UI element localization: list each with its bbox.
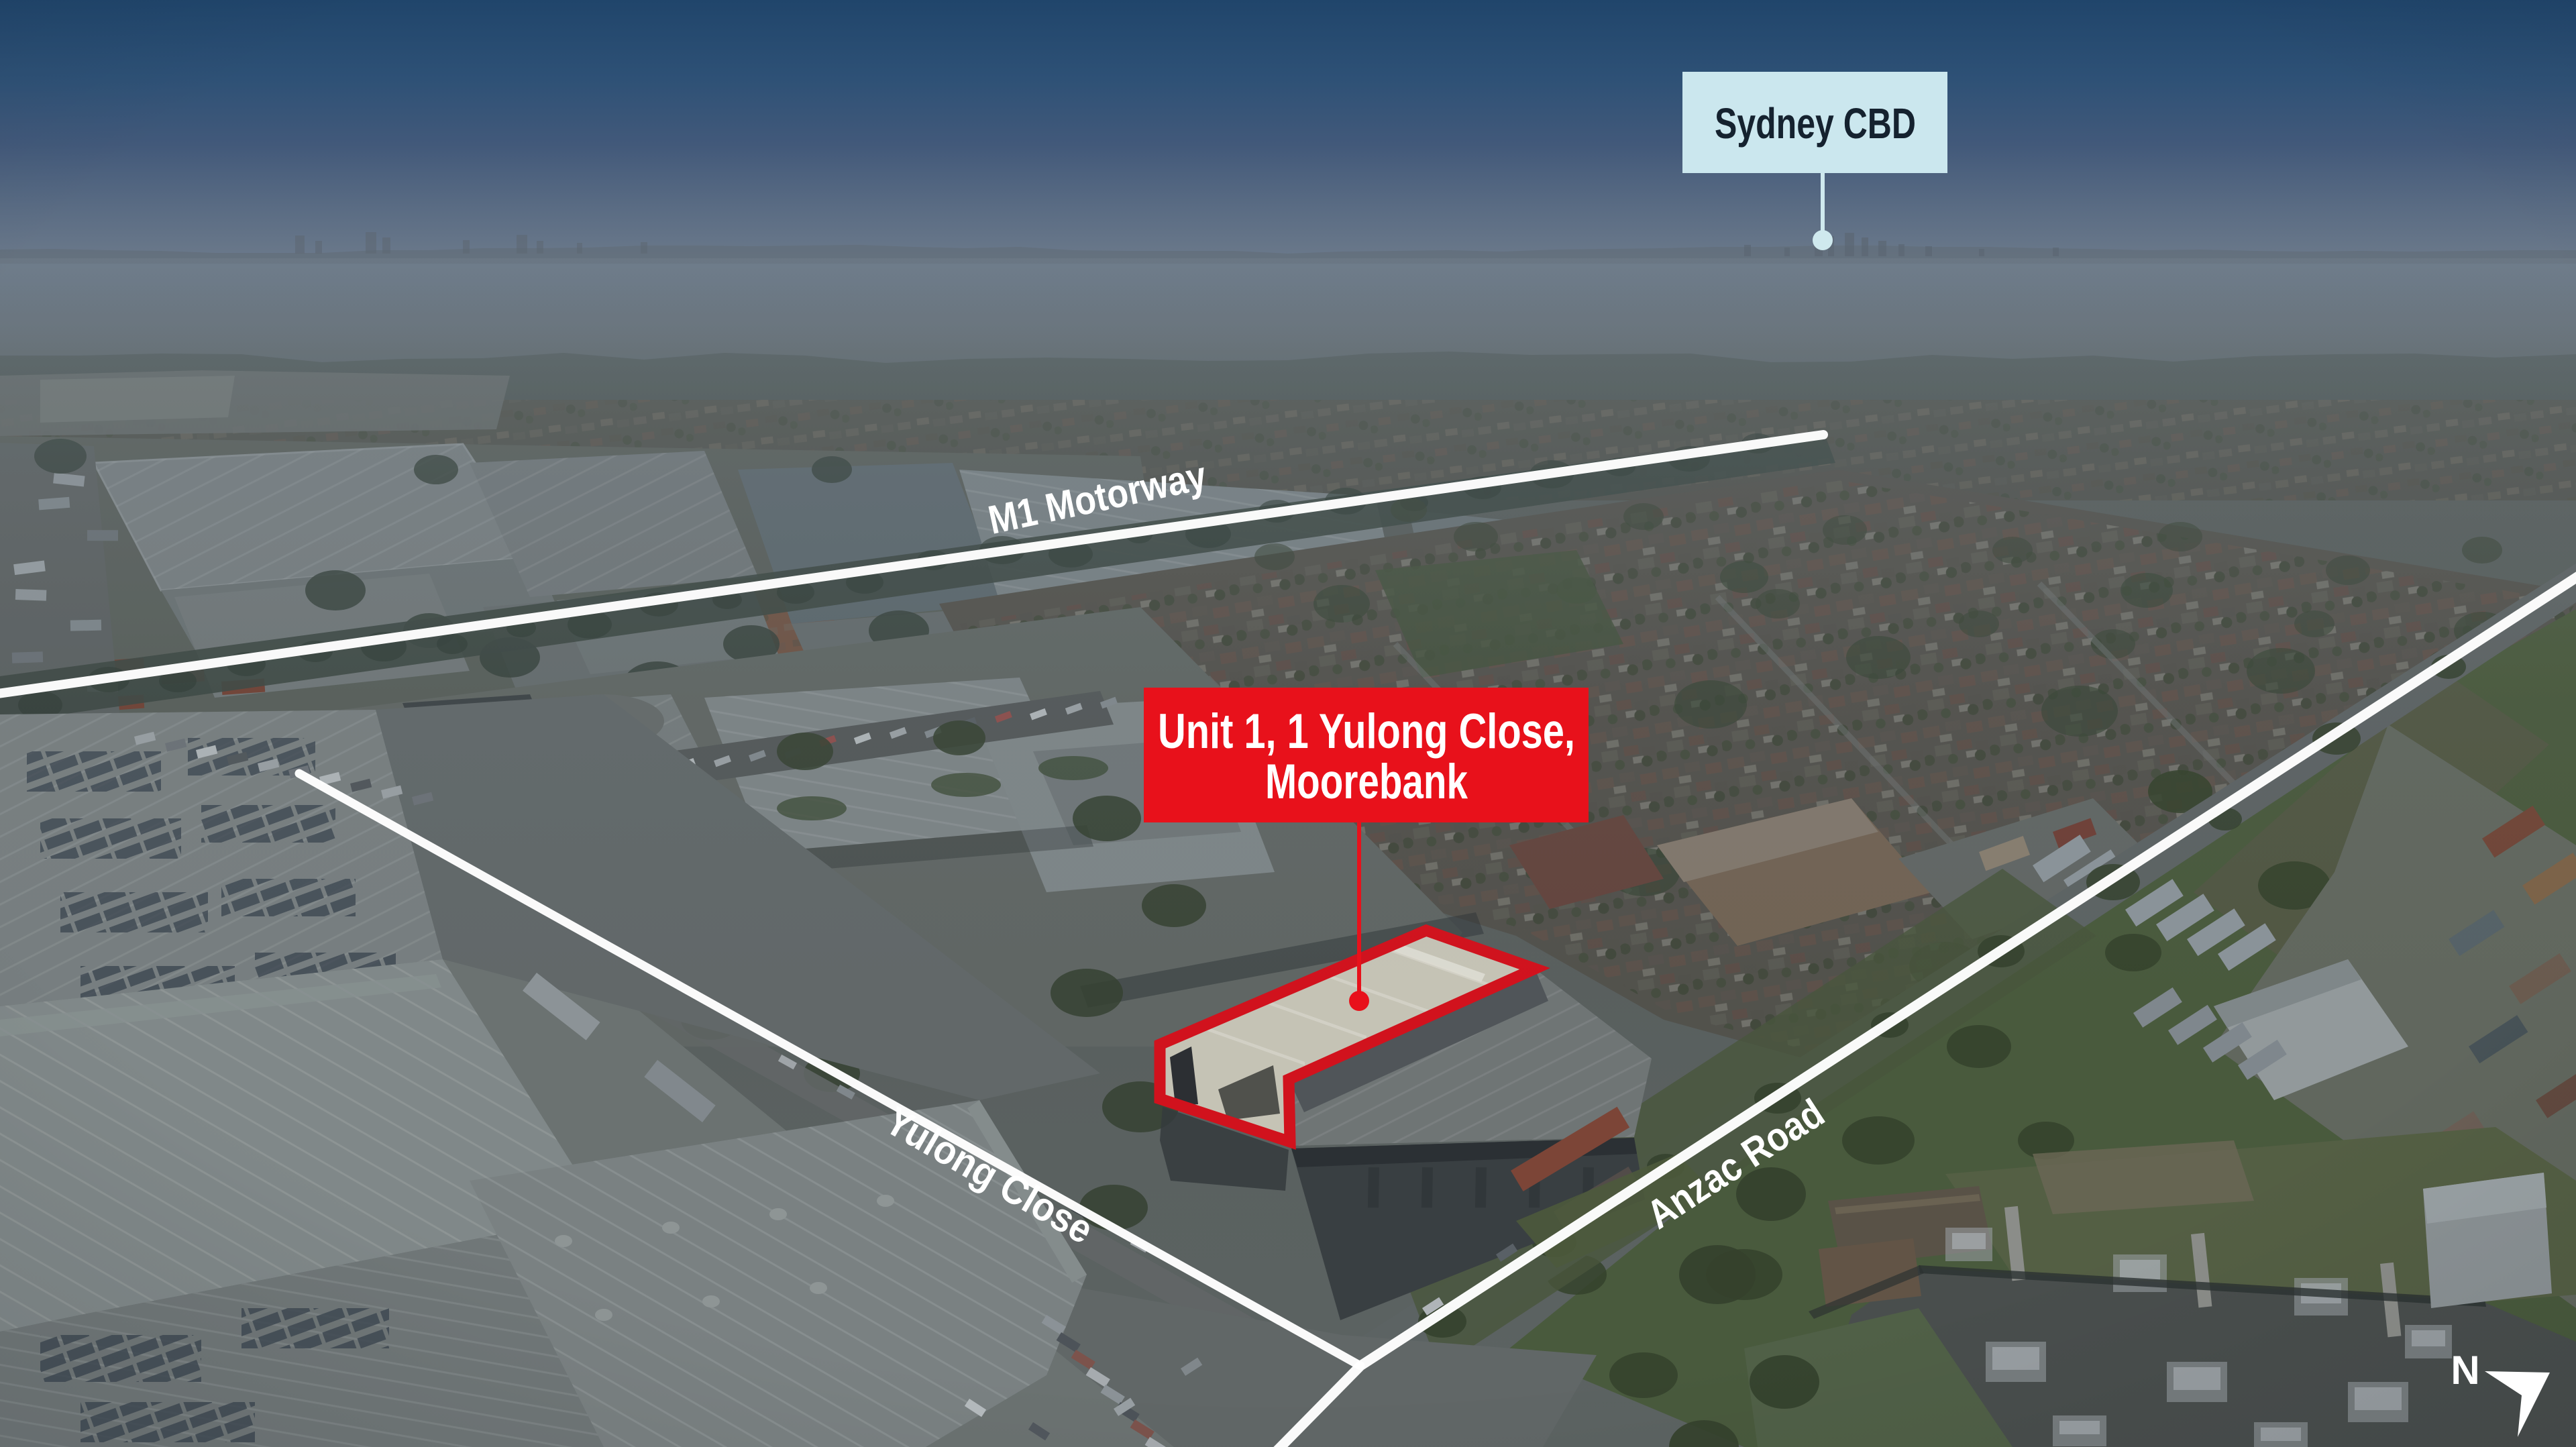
svg-text:Moorebank: Moorebank — [1265, 755, 1468, 809]
svg-text:Unit 1, 1 Yulong Close,: Unit 1, 1 Yulong Close, — [1158, 704, 1575, 759]
svg-text:Sydney CBD: Sydney CBD — [1715, 99, 1916, 148]
svg-text:N: N — [2451, 1348, 2479, 1393]
